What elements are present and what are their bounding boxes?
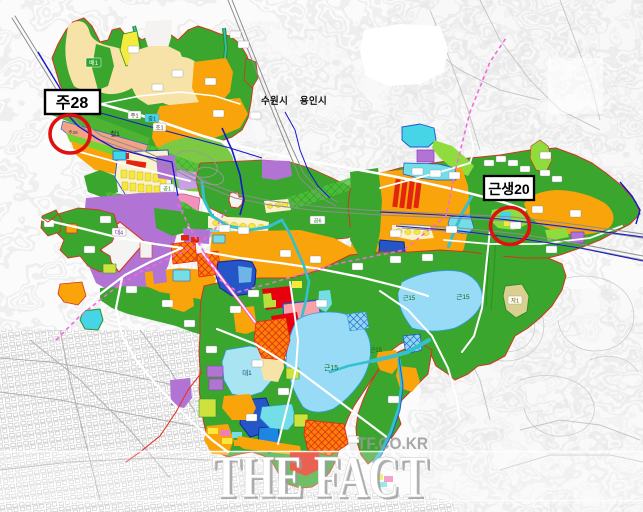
svg-text:주28: 주28 xyxy=(56,94,89,112)
svg-text:공1: 공1 xyxy=(163,186,171,193)
svg-text:근15: 근15 xyxy=(370,347,383,354)
svg-text:근15: 근15 xyxy=(456,293,470,301)
svg-text:공6: 공6 xyxy=(313,218,321,225)
svg-text:자1: 자1 xyxy=(511,297,519,305)
svg-text:초1: 초1 xyxy=(155,125,163,132)
svg-text:배1: 배1 xyxy=(89,59,99,67)
svg-text:철1: 철1 xyxy=(110,129,120,138)
svg-text:주1: 주1 xyxy=(130,113,138,120)
svg-text:수원시 용인시: 수원시 용인시 xyxy=(261,95,327,107)
svg-text:대4: 대4 xyxy=(115,229,123,237)
svg-text:근15: 근15 xyxy=(403,295,416,302)
svg-text:근생20: 근생20 xyxy=(488,181,530,197)
svg-text:근15: 근15 xyxy=(324,364,338,372)
svg-text:중1: 중1 xyxy=(148,116,156,123)
svg-text:대1: 대1 xyxy=(242,369,252,377)
